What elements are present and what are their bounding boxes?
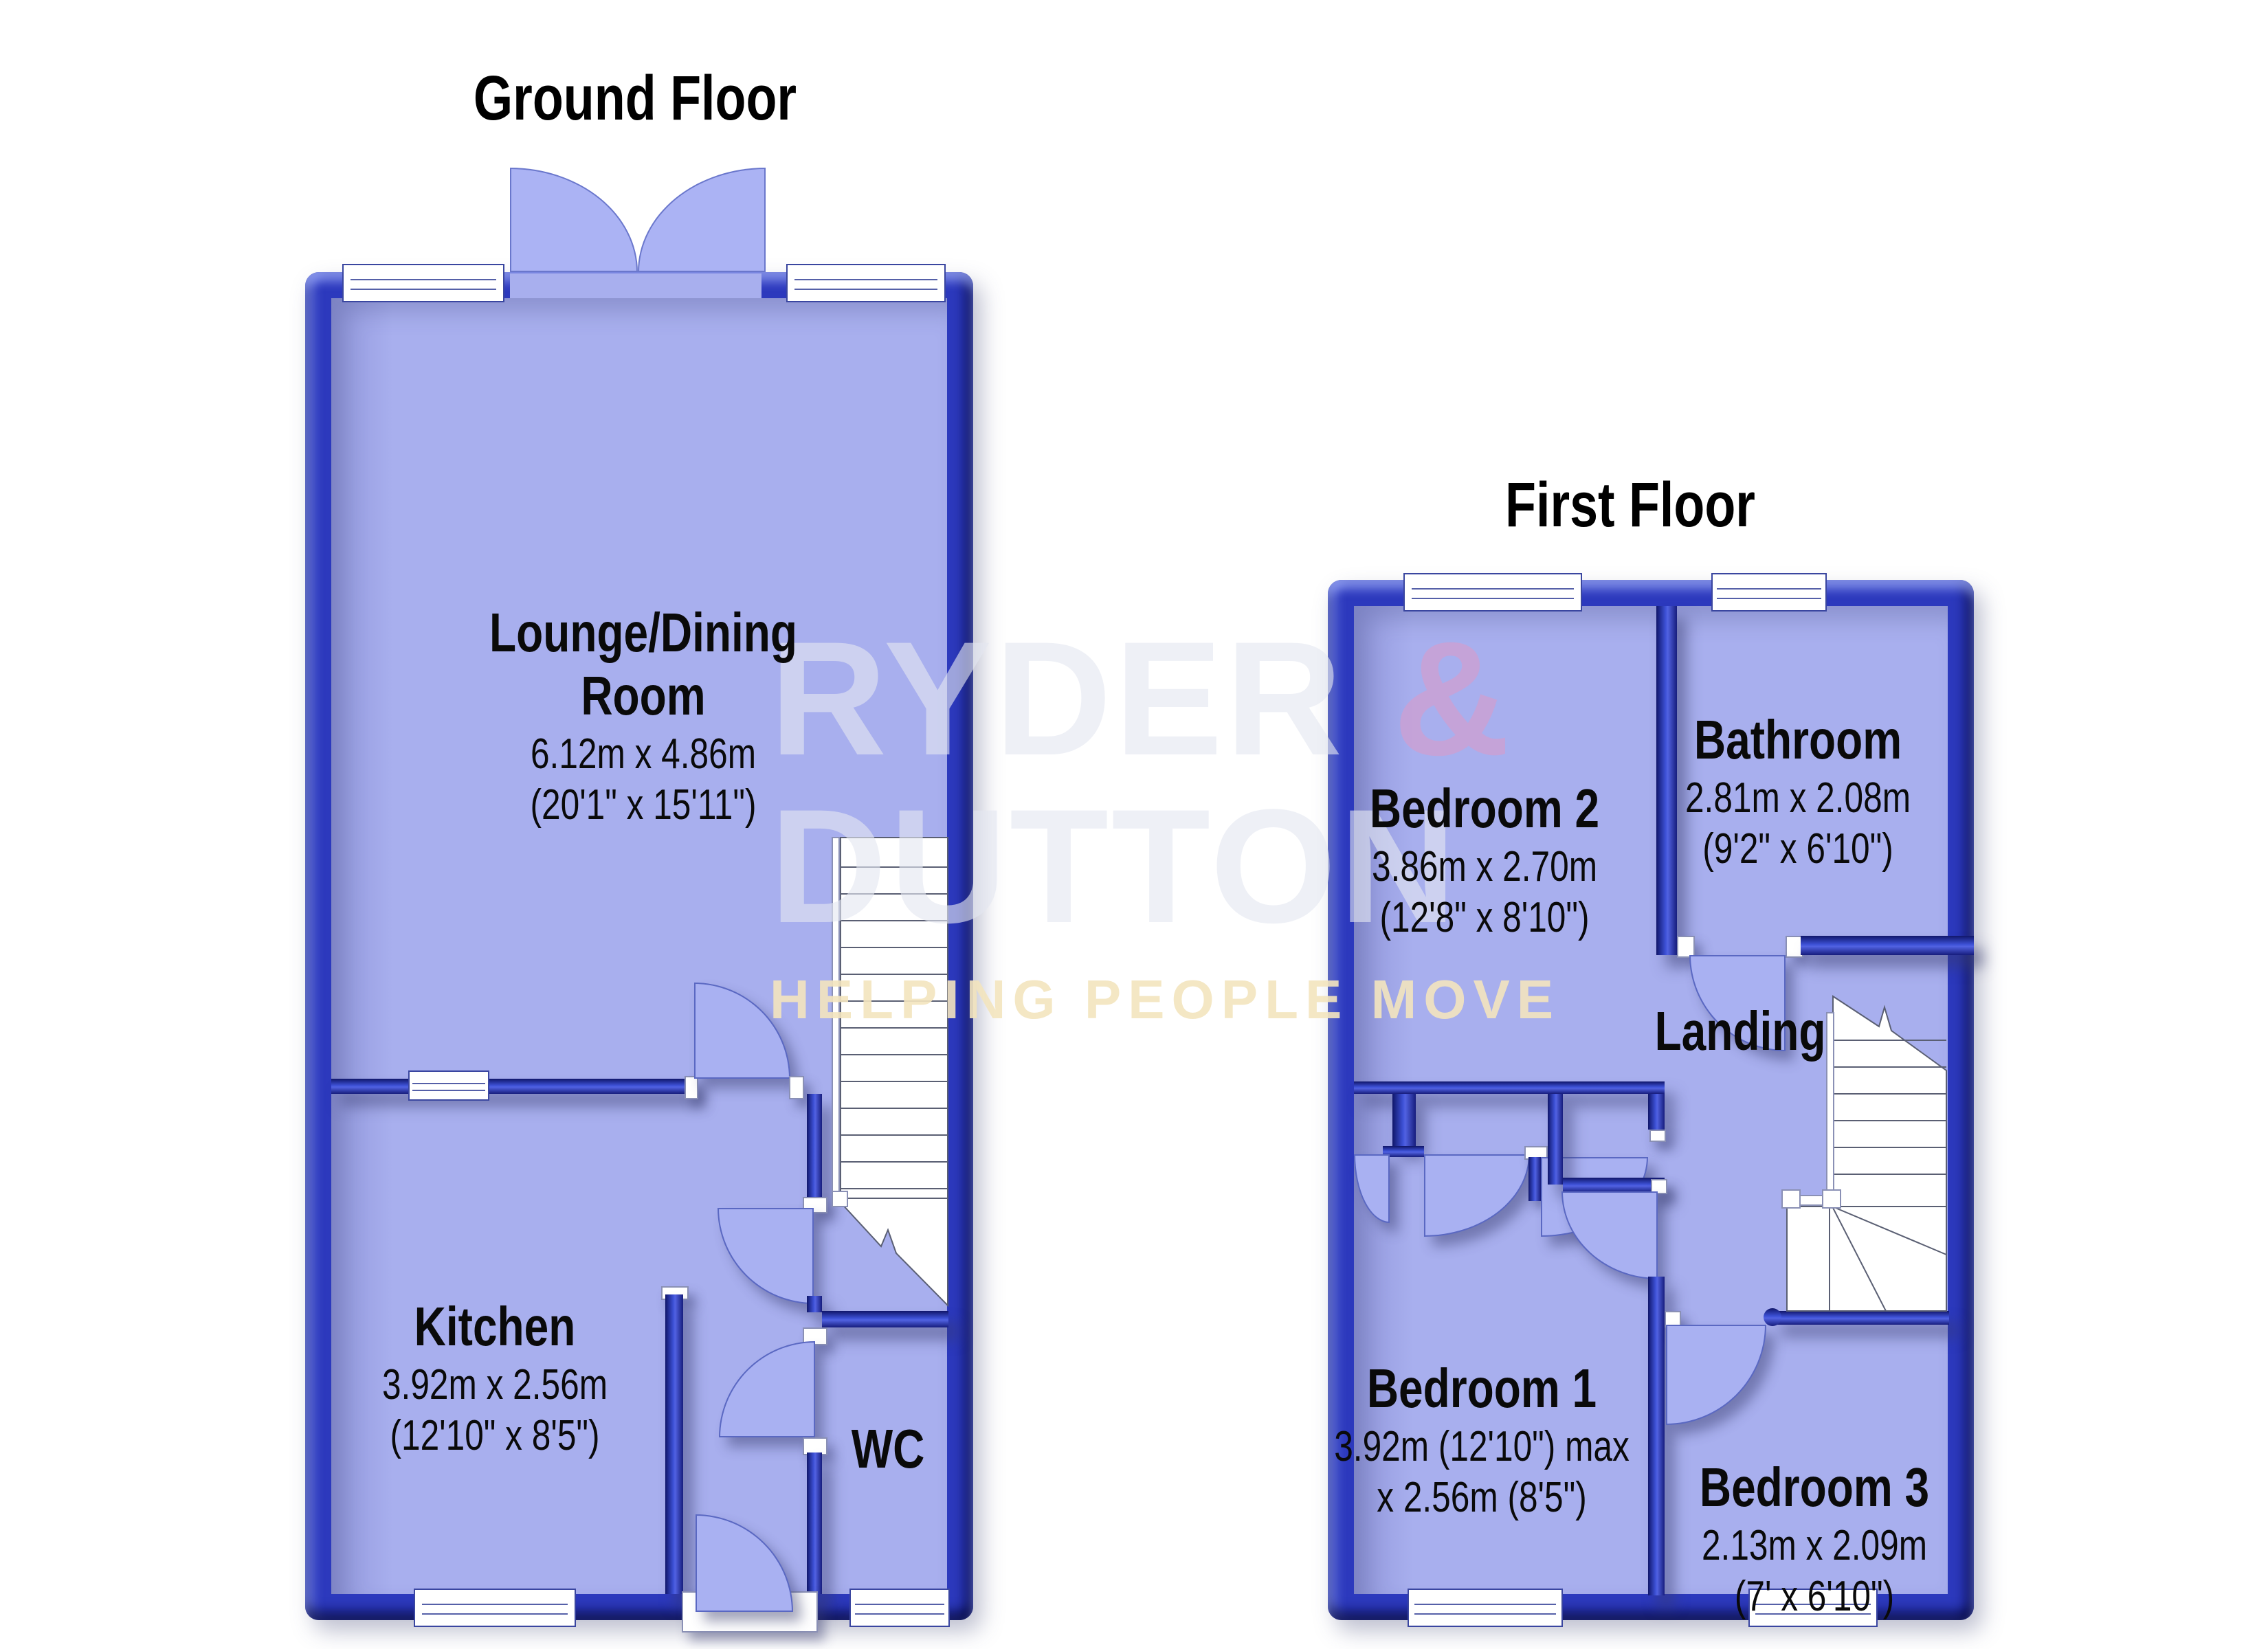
bathroom-south-wall xyxy=(1801,936,1974,955)
door-jamb xyxy=(789,1076,804,1099)
wall-bullnose xyxy=(1764,1308,1781,1326)
bedroom1-label: Bedroom 1 3.92m (12'10") max x 2.56m (8'… xyxy=(1334,1358,1630,1523)
french-door-right-leaf xyxy=(638,168,766,272)
kitchen-lobby-wall xyxy=(665,1294,683,1594)
bathroom-label: Bathroom 2.81m x 2.08m (9'2" x 6'10") xyxy=(1685,709,1911,874)
wc-wall xyxy=(807,1452,822,1594)
bedroom2-south-wall xyxy=(1354,1081,1665,1094)
hall-wall-stub xyxy=(807,1296,822,1312)
bedroom1-window xyxy=(1408,1589,1563,1627)
wc-label: WC xyxy=(852,1418,925,1481)
bedroom1-north-wall xyxy=(1563,1178,1665,1193)
kitchen-label: Kitchen 3.92m x 2.56m (12'10" x 8'5") xyxy=(382,1296,608,1461)
hall-wall-upper xyxy=(807,1094,822,1200)
landing-label: Landing xyxy=(1655,1000,1826,1064)
bedroom3-label: Bedroom 3 2.13m x 2.09m (7' x 6'10") xyxy=(1700,1457,1929,1622)
bathroom-window xyxy=(1711,573,1827,612)
first-floor-title: First Floor xyxy=(1505,467,1755,541)
french-door-left-leaf xyxy=(510,168,638,272)
lounge-window-left xyxy=(342,264,504,302)
kitchen-window xyxy=(414,1589,576,1627)
door-jamb xyxy=(685,1076,698,1099)
hall-wc-wall xyxy=(822,1311,948,1327)
wardrobe-stub xyxy=(1392,1094,1416,1147)
lounge-kitchen-wall xyxy=(331,1079,694,1094)
floorplan-page: Ground Floor xyxy=(0,0,2268,1649)
bedroom2-bathroom-wall xyxy=(1656,606,1677,955)
wc-window xyxy=(849,1589,950,1627)
door-jamb xyxy=(1649,1130,1666,1142)
floorplan-canvas: Ground Floor xyxy=(0,0,2268,1649)
french-door-opening xyxy=(510,273,761,298)
bedroom2-label: Bedroom 2 3.86m x 2.70m (12'8" x 8'10") xyxy=(1370,778,1599,943)
landing-corner-wall xyxy=(1648,1094,1665,1130)
bedroom1-bedroom3-wall xyxy=(1648,1277,1665,1595)
lounge-window-right xyxy=(786,264,946,302)
internal-window xyxy=(408,1070,489,1101)
lounge-label: Lounge/Dining Room 6.12m x 4.86m (20'1" … xyxy=(489,602,797,830)
bedroom1-vestibule-wall xyxy=(1548,1094,1563,1185)
door-stub xyxy=(1528,1157,1541,1201)
ground-floor-stairs xyxy=(832,837,948,1311)
ground-floor-title: Ground Floor xyxy=(474,60,797,135)
bedroom2-window xyxy=(1403,573,1582,612)
